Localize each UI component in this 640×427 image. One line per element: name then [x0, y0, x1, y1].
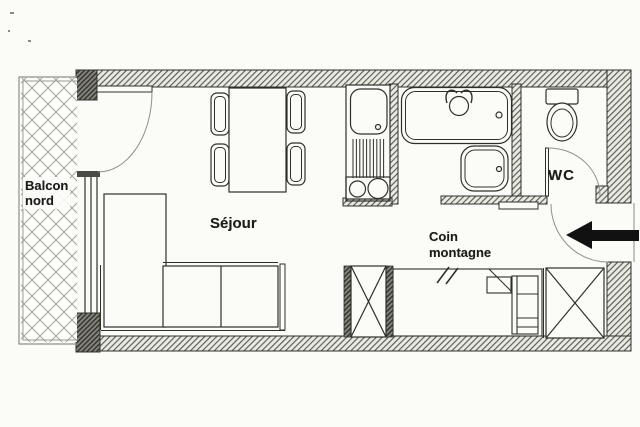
- entrance: [551, 204, 639, 262]
- toilet-tank: [546, 89, 578, 104]
- floor-plan-image: Balcon nord Séjour Coin montagne WC: [0, 0, 640, 427]
- floor-plan-drawing: [0, 0, 640, 427]
- wc-wall-stub: [596, 186, 608, 203]
- chair-top-left: [211, 93, 229, 135]
- balcony-door-arc: [98, 92, 152, 172]
- window-sill: [77, 171, 100, 177]
- chair-bottom-left: [211, 144, 229, 186]
- mountain-nook-label-line2: montagne: [429, 245, 491, 260]
- bathroom-wc-wall: [512, 84, 521, 199]
- living-room-label: Séjour: [210, 215, 257, 232]
- single-bed: [104, 194, 166, 327]
- bathroom: [402, 88, 512, 192]
- wardrobe-left: [344, 266, 393, 337]
- wc-label: WC: [548, 167, 575, 184]
- balcony-window: [85, 177, 97, 313]
- balcony-label-line2: nord: [25, 193, 54, 208]
- wardrobe-right: [544, 268, 605, 338]
- chair-bottom-right: [287, 143, 305, 185]
- corner-block-bottom-left: [76, 313, 100, 352]
- balcony-door-leaf: [97, 86, 152, 92]
- scan-noise: [8, 12, 31, 42]
- dining-set: [211, 88, 305, 192]
- dining-table: [229, 88, 286, 192]
- balcony-label: Balcon nord: [23, 177, 70, 209]
- corner-block-top-left: [76, 70, 97, 100]
- sejour-furniture: [101, 194, 286, 331]
- sofa-armrest: [280, 264, 285, 330]
- kitchenette: [346, 85, 390, 201]
- chair-top-right: [287, 91, 305, 133]
- bathroom-door-threshold: [499, 202, 538, 209]
- coin-montagne: [393, 267, 542, 336]
- right-wall-upper: [607, 70, 631, 203]
- balcony-floor: [21, 78, 77, 342]
- entrance-arrow-icon: [566, 221, 639, 249]
- balcony-label-line1: Balcon: [25, 178, 68, 193]
- nook-bed: [393, 269, 542, 336]
- mountain-nook-label: Coin montagne: [429, 229, 491, 261]
- mountain-nook-label-line1: Coin: [429, 229, 458, 244]
